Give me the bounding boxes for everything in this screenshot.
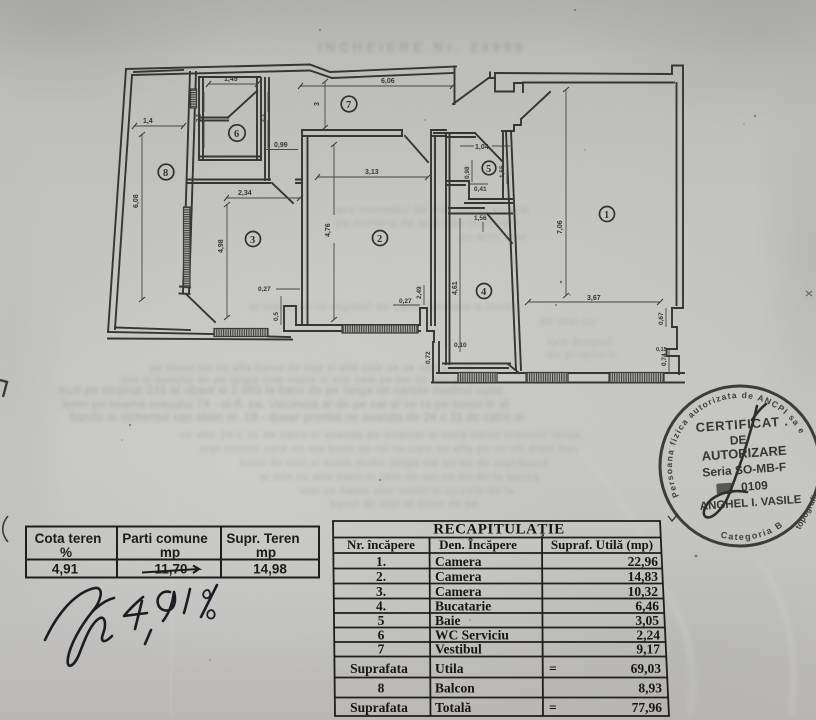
svg-text:11,70: 11,70 (154, 562, 187, 577)
svg-text:6: 6 (378, 628, 385, 643)
svg-text:4: 4 (481, 287, 487, 298)
svg-text:de proprieta: de proprieta (548, 349, 616, 361)
svg-text:0,41: 0,41 (474, 186, 487, 193)
svg-text:WC Serviciu: WC Serviciu (435, 628, 509, 643)
svg-text:8,93: 8,93 (638, 681, 662, 696)
svg-text:2.: 2. (376, 569, 386, 584)
svg-text:2,34: 2,34 (238, 190, 252, 197)
svg-text:2,1: 2,1 (261, 113, 267, 122)
svg-text:1,4: 1,4 (143, 118, 153, 125)
svg-text:1,55: 1,55 (499, 165, 506, 178)
svg-text:4.: 4. (376, 599, 386, 614)
svg-text:Suprafata: Suprafata (350, 661, 408, 676)
svg-text:6: 6 (234, 129, 239, 140)
svg-text:Cota teren: Cota teren (35, 531, 102, 546)
svg-text:tale dreptul: tale dreptul (548, 336, 612, 348)
svg-text:lemn pe seama orasului 74 - st: lemn pe seama orasului 74 - st.fl. ca. V… (62, 399, 509, 411)
svg-text:1.: 1. (376, 554, 386, 569)
svg-text:2,49: 2,49 (416, 286, 423, 299)
svg-text:69,03: 69,03 (631, 661, 662, 676)
svg-text:al min cu alte banii si cele d: al min cu alte banii si cele de azi cu t… (260, 471, 540, 483)
svg-text:4,91: 4,91 (52, 562, 79, 577)
svg-text:4,98: 4,98 (218, 239, 225, 253)
svg-text:14,98: 14,98 (253, 562, 287, 577)
svg-text:77,96: 77,96 (632, 700, 663, 715)
svg-text:si transcrie in regimul de car: si transcrie in regimul de carte funciar… (250, 301, 519, 313)
svg-text:1,56: 1,56 (474, 215, 487, 222)
svg-text:1,04: 1,04 (475, 144, 489, 151)
svg-text:8: 8 (163, 168, 168, 179)
svg-text:2,24: 2,24 (636, 628, 660, 643)
svg-text:2,1: 2,1 (197, 113, 203, 122)
svg-text:pe acest loc se afla banul de: pe acest loc se afla banul de stat si al… (150, 362, 472, 374)
svg-text:0,67: 0,67 (658, 312, 665, 325)
svg-text:6,08: 6,08 (133, 194, 140, 208)
svg-text:0,72: 0,72 (425, 351, 432, 364)
svg-text:mp: mp (256, 545, 276, 560)
svg-text:4,61: 4,61 (452, 281, 459, 295)
svg-text:Nr. încăpere: Nr. încăpere (347, 537, 415, 552)
svg-text:banul de stat al celor de pe: banul de stat al celor de pe (330, 498, 479, 510)
svg-text:8: 8 (378, 681, 385, 696)
svg-text:1: 1 (604, 210, 609, 221)
svg-text:1,45: 1,45 (224, 76, 238, 83)
svg-text:Supraf. Utilă (mp): Supraf. Utilă (mp) (551, 537, 653, 552)
svg-text:%: % (60, 545, 72, 560)
svg-text:INCHEIERE Nr. 24998: INCHEIERE Nr. 24998 (318, 39, 526, 55)
svg-text:6,46: 6,46 (635, 599, 659, 614)
svg-text:4,76: 4,76 (325, 223, 332, 237)
svg-text:5: 5 (378, 613, 385, 628)
svg-text:3,05: 3,05 (635, 613, 659, 628)
svg-text:Totală: Totală (435, 700, 472, 715)
svg-text:3,13: 3,13 (365, 169, 379, 176)
svg-text:Bucatarie: Bucatarie (435, 599, 491, 614)
svg-text:0,5: 0,5 (273, 312, 280, 321)
svg-text:stat cu banul alor nostri si c: stat cu banul alor nostri si cu cele de … (300, 485, 515, 497)
svg-text:banii de stat si avem multe la: banii de stat si avem multe langa ele cu… (240, 457, 548, 469)
svg-text:RECAPITULAŢIE: RECAPITULAŢIE (433, 522, 565, 538)
svg-text:0,74: 0,74 (661, 353, 668, 366)
svg-text:Supr. Teren: Supr. Teren (226, 531, 299, 546)
svg-text:cu alte 24 c 11 de catre si av: cu alte 24 c 11 de catre si avanda pe st… (180, 429, 581, 441)
svg-text:Parti comune: Parti comune (122, 531, 208, 546)
svg-text:0,10: 0,10 (454, 342, 467, 349)
svg-text:de stat cu: de stat cu (540, 316, 596, 328)
svg-text:=: = (549, 661, 557, 676)
svg-text:0,98: 0,98 (464, 166, 471, 179)
svg-text:banda si vichentul san obtin n: banda si vichentul san obtin nr. 18 - do… (70, 412, 524, 424)
svg-text:0,15: 0,15 (656, 347, 667, 353)
svg-text:0,27: 0,27 (399, 298, 412, 305)
svg-text:Camera: Camera (435, 569, 482, 584)
svg-text:6,06: 6,06 (381, 78, 395, 85)
svg-text:Suprafata: Suprafata (350, 700, 408, 715)
svg-text:9,17: 9,17 (636, 642, 660, 657)
svg-text:7: 7 (346, 100, 351, 111)
svg-text:10,32: 10,32 (628, 584, 659, 599)
svg-text:Utila: Utila (435, 661, 464, 676)
svg-text:stat mentul care nu sta banii: stat mentul care nu sta banii de rel cu … (200, 443, 579, 455)
svg-text:Den. Încăpere: Den. Încăpere (439, 537, 517, 552)
svg-text:14,83: 14,83 (628, 569, 659, 584)
svg-text:Vestibul: Vestibul (435, 642, 482, 657)
svg-text:mp: mp (160, 545, 180, 560)
svg-text:7: 7 (378, 642, 385, 657)
svg-text:Camera: Camera (435, 584, 482, 599)
svg-text:2: 2 (377, 234, 382, 245)
svg-text:3: 3 (314, 102, 321, 106)
svg-text:Baie: Baie (435, 613, 461, 628)
svg-text:cu artic stat: cu artic stat (460, 231, 527, 243)
svg-text:mult pe strainat 231 al obant: mult pe strainat 231 al obant si 2.065 l… (58, 385, 504, 397)
svg-text:5: 5 (486, 164, 491, 175)
svg-text:0,99: 0,99 (274, 142, 288, 149)
svg-text:3: 3 (250, 235, 255, 246)
svg-text:=: = (549, 700, 557, 715)
svg-text:Balcon: Balcon (435, 681, 475, 696)
svg-text:7,06: 7,06 (557, 220, 564, 234)
svg-text:3,67: 3,67 (587, 295, 601, 302)
svg-text:Camera: Camera (435, 554, 482, 569)
svg-text:3.: 3. (376, 584, 386, 599)
svg-text:22,96: 22,96 (628, 554, 659, 569)
svg-text:0,27: 0,27 (258, 286, 271, 293)
